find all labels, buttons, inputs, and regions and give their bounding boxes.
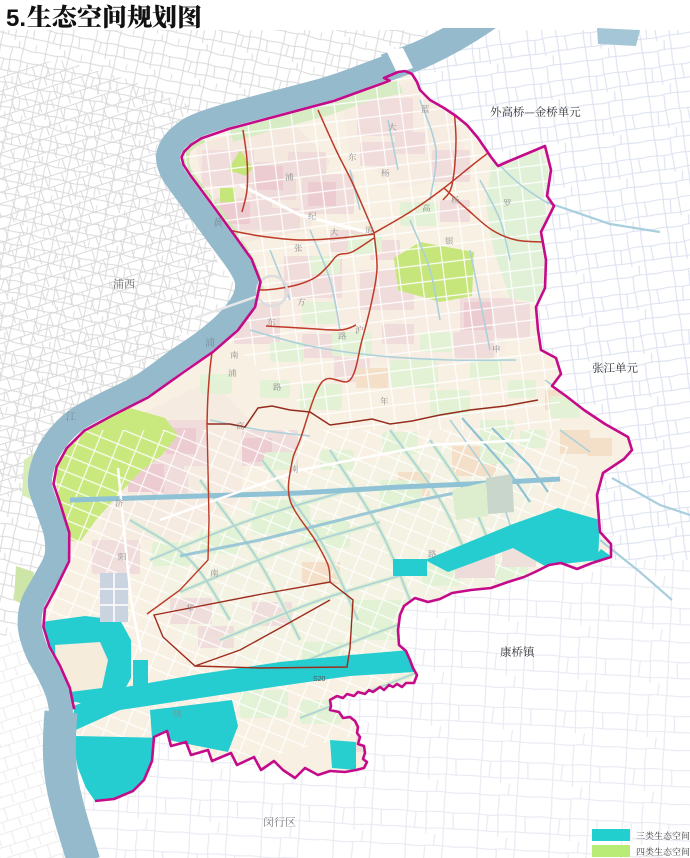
svg-text:S20: S20 bbox=[313, 676, 326, 683]
svg-text:5.: 5. bbox=[6, 5, 26, 32]
